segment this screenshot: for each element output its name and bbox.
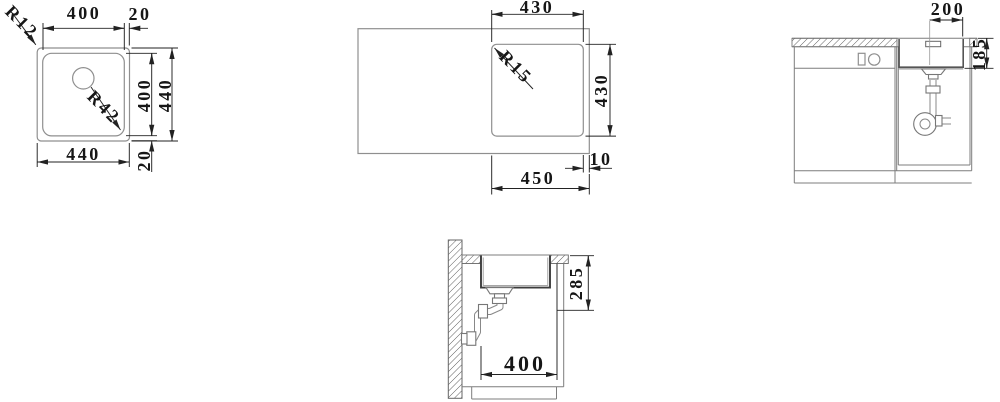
dim-label-inner-height: 400 [135, 72, 153, 118]
dim-label-top-width: 400 [61, 4, 107, 22]
technical-drawing-canvas: 400 20 400 440 440 20 R12 R42 430 R15 43… [0, 0, 1000, 402]
counter-section-right [550, 255, 568, 264]
siphon-front [914, 69, 951, 135]
bowl-section-side [481, 256, 550, 288]
overflow-slot [926, 41, 941, 46]
dim-label-outlet-height: 285 [567, 259, 585, 307]
counter-section-left [462, 255, 481, 264]
dim-label-outer-height: 440 [156, 72, 174, 118]
dim-label-bottom-width: 440 [60, 145, 107, 163]
dim-label-bowl-width: 400 [497, 353, 553, 375]
dim-label-overall: 450 [514, 169, 562, 187]
dim-label-top-rim: 20 [124, 5, 156, 23]
dim-label-cutout-width: 430 [513, 0, 561, 16]
siphon-side [462, 288, 514, 346]
worktop-outline [358, 29, 589, 154]
dim-label-edge-offset: 10 [585, 150, 617, 168]
control-knob [869, 54, 880, 65]
dim-label-bottom-rim: 20 [135, 144, 153, 176]
wall-hatch [448, 240, 462, 398]
dim-label-drain-to-edge: 200 [924, 0, 972, 18]
dim-label-cutout-height: 430 [592, 66, 610, 114]
worktop-cutout-view [358, 10, 616, 195]
countertop-hatch-left [792, 38, 897, 46]
cabinet-front-view [792, 17, 994, 183]
dim-label-bowl-depth: 185 [970, 30, 988, 78]
control-switch [858, 53, 865, 65]
